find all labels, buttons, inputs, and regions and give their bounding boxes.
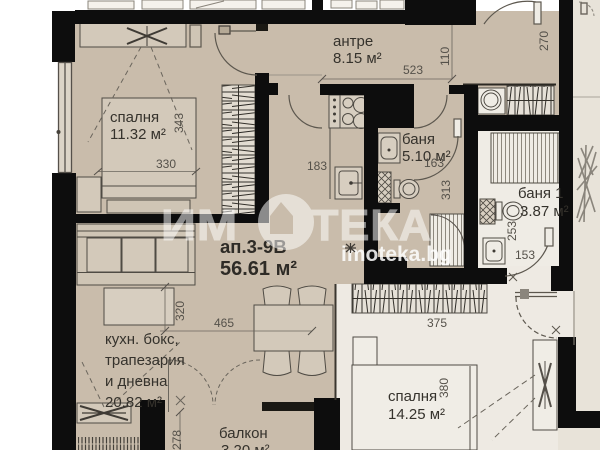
- svg-text:imoteka.bg: imoteka.bg: [341, 243, 452, 266]
- svg-text:343: 343: [172, 113, 186, 133]
- svg-text:465: 465: [214, 316, 234, 330]
- svg-text:баня: баня: [402, 131, 435, 148]
- svg-text:3.87 м²: 3.87 м²: [520, 203, 569, 220]
- svg-text:375: 375: [427, 316, 447, 330]
- svg-text:трапезария: трапезария: [105, 352, 185, 369]
- svg-text:56.61 м²: 56.61 м²: [220, 258, 297, 280]
- svg-text:3.20 м²: 3.20 м²: [221, 442, 270, 450]
- svg-text:153: 153: [515, 248, 535, 262]
- svg-text:11.32 м²: 11.32 м²: [110, 126, 166, 143]
- svg-text:8.15 м²: 8.15 м²: [333, 50, 382, 67]
- svg-text:320: 320: [173, 301, 187, 321]
- svg-text:20.82 м²: 20.82 м²: [105, 394, 162, 411]
- svg-text:110: 110: [438, 47, 452, 66]
- svg-text:баня 1: баня 1: [518, 185, 564, 202]
- svg-text:и дневна: и дневна: [105, 373, 168, 390]
- svg-text:523: 523: [403, 63, 423, 77]
- svg-text:спалня: спалня: [110, 109, 159, 126]
- svg-text:спалня: спалня: [388, 388, 437, 405]
- svg-text:14.25 м²: 14.25 м²: [388, 406, 445, 423]
- svg-text:278: 278: [170, 430, 184, 450]
- svg-text:антре: антре: [333, 33, 373, 50]
- svg-text:балкон: балкон: [219, 425, 268, 442]
- svg-text:380: 380: [437, 378, 451, 398]
- svg-text:ИМ: ИМ: [161, 200, 238, 249]
- svg-text:313: 313: [439, 180, 453, 200]
- svg-text:кухн. бокс,: кухн. бокс,: [105, 331, 179, 348]
- svg-text:253: 253: [505, 221, 519, 241]
- svg-text:183: 183: [307, 159, 327, 173]
- svg-text:163: 163: [424, 156, 444, 170]
- svg-text:330: 330: [156, 157, 176, 171]
- svg-text:270: 270: [537, 31, 551, 51]
